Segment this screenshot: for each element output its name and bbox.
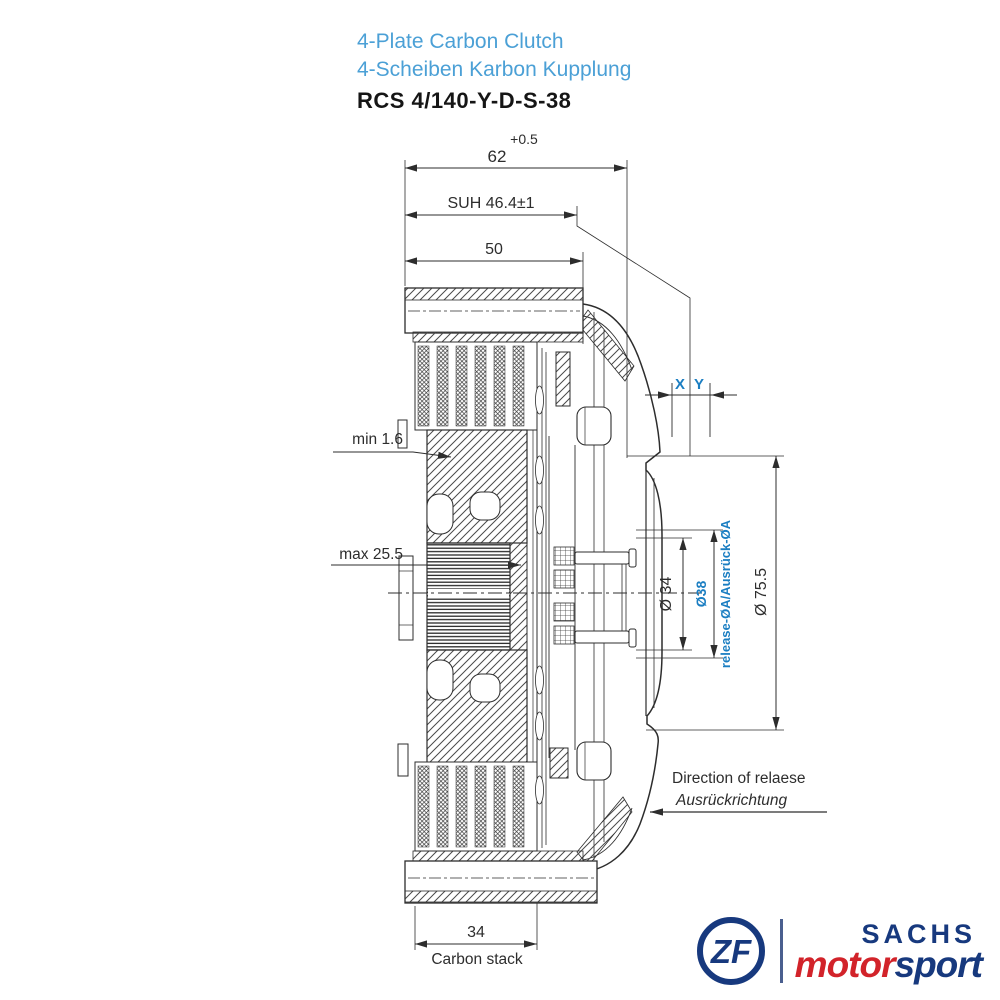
zf-logo-icon: ZF [694,914,768,988]
dim-dia34-value: Ø 34 [658,577,675,612]
hub-spline [427,543,527,650]
pivot-bolts [550,352,611,780]
dim-y-label: Y [694,376,704,393]
flywheel-ring-bottom [405,861,597,903]
sachs-motorsport-logo: ZF SACHS motorsport [694,914,982,988]
direction-label-de: Ausrückrichtung [675,792,788,809]
max-travel-value: max 25.5 [339,546,403,563]
dim-dia38-value: Ø38 [693,581,709,608]
logo-divider [780,919,783,983]
dim-62-value: 62 [488,147,507,166]
zf-logo-text: ZF [710,933,752,970]
release-direction: Direction of relaese Ausrückrichtung [650,770,827,812]
dim-carbon-stack: 34 Carbon stack [415,903,537,968]
min-wear-value: min 1.6 [352,431,403,448]
direction-label-en: Direction of relaese [672,770,806,787]
dim-xy: X Y [645,376,737,437]
dim-50-value: 50 [485,241,503,258]
dim-dia38-release: Ø38 release-ØA/Ausrück-ØA [636,519,733,668]
dim-62-tolerance: +0.5 [510,131,538,147]
drawing-sheet: 4-Plate Carbon Clutch 4-Scheiben Karbon … [0,0,1000,1000]
stack-label: Carbon stack [431,951,523,968]
release-bearing [549,436,636,758]
flywheel-ring-top [405,288,583,342]
stack-width-value: 34 [467,924,485,941]
diaphragm-spring [536,343,547,851]
brand-motorsport: motorsport [795,948,982,981]
carbon-stack-top [415,342,537,430]
dim-dia34: Ø 34 [636,538,692,650]
dim-dia75-value: Ø 75.5 [753,568,770,616]
dim-x-label: X [675,376,685,393]
strap-tabs-left [398,420,413,776]
pressure-plate-upper [427,430,527,543]
clutch-cover [577,304,662,872]
brand-motor: motor [795,944,895,985]
brand-sport: sport [895,944,983,985]
clutch-cross-section-drawing: 62 +0.5 SUH 46.4±1 50 X Y [0,0,1000,1000]
dim-suh-value: SUH 46.4±1 [447,195,534,212]
dim-release-dia-label: release-ØA/Ausrück-ØA [718,519,733,668]
brand-text: SACHS motorsport [795,921,982,981]
